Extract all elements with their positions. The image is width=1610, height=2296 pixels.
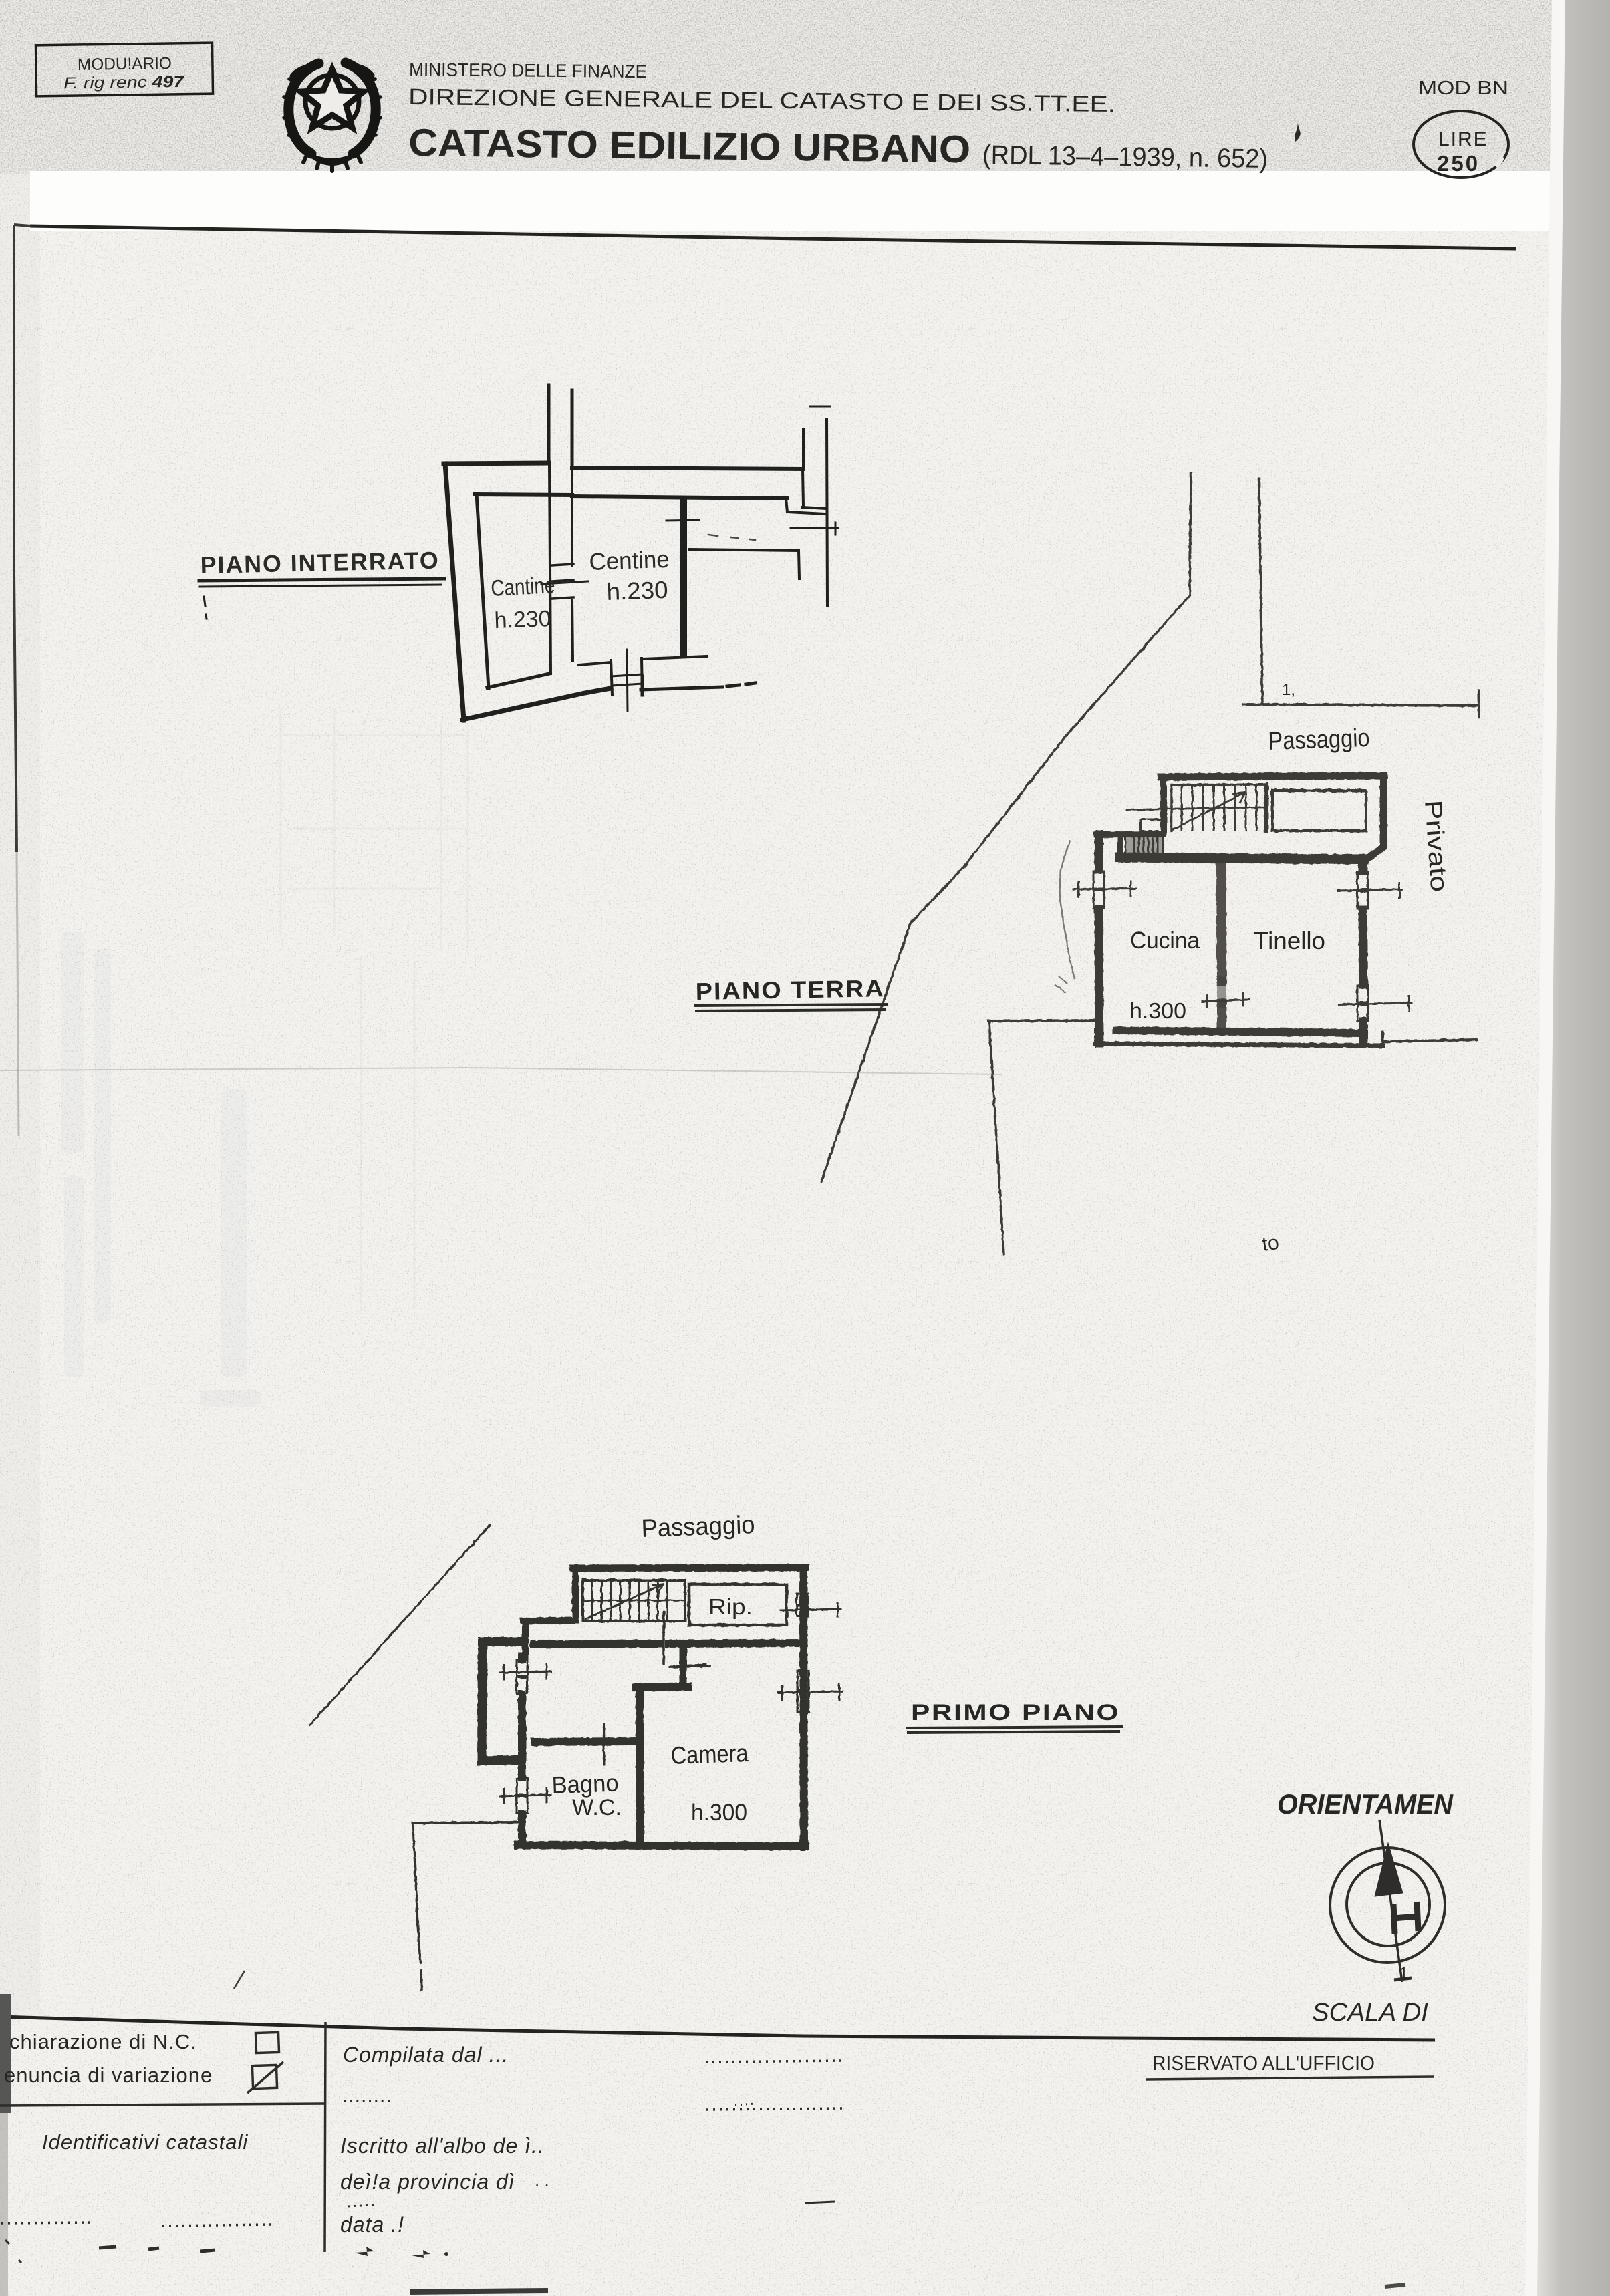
svg-text:MOD BN: MOD BN (1418, 78, 1508, 99)
svg-text:CATASTO EDILIZIO URBANO: CATASTO EDILIZIO URBANO (408, 121, 971, 171)
svg-text:Identificativi catastali: Identificativi catastali (42, 2130, 248, 2154)
svg-text:Passaggio: Passaggio (1268, 724, 1370, 756)
svg-text:250: 250 (1437, 151, 1480, 176)
svg-text:F. rig renc 497: F. rig renc 497 (63, 73, 185, 93)
svg-text:Tinello: Tinello (1254, 927, 1325, 954)
svg-text:to: to (1260, 1232, 1280, 1256)
svg-text:PIANO INTERRATO: PIANO INTERRATO (200, 547, 440, 579)
svg-text:Rip.: Rip. (708, 1594, 753, 1619)
svg-text:Iscritto all'albo de ì..: Iscritto all'albo de ì.. (340, 2134, 545, 2158)
svg-text:data .!: data .! (340, 2212, 404, 2237)
svg-text:Cantine: Cantine (490, 573, 555, 601)
svg-text:h.300: h.300 (691, 1800, 747, 1826)
svg-text:Centine: Centine (589, 545, 670, 575)
svg-text:deì!a provincia dì: deì!a provincia dì (340, 2170, 515, 2194)
svg-text:. .: . . (535, 2170, 549, 2190)
svg-text:W.C.: W.C. (572, 1795, 622, 1820)
svg-text:MINISTERO DELLE FINANZE: MINISTERO DELLE FINANZE (409, 59, 647, 82)
svg-text:SCALA DI: SCALA DI (1312, 1999, 1428, 2027)
svg-text:1,: 1, (1282, 681, 1295, 699)
svg-text:LIRE: LIRE (1438, 128, 1488, 150)
svg-text:Camera: Camera (670, 1739, 749, 1769)
svg-text:MODU!ARIO: MODU!ARIO (78, 54, 172, 74)
svg-text:h.300: h.300 (1129, 998, 1186, 1023)
svg-text:Cucina: Cucina (1130, 927, 1200, 954)
svg-text:enuncia di variazione: enuncia di variazione (4, 2063, 213, 2087)
svg-text:RISERVATO ALL'UFFICIO: RISERVATO ALL'UFFICIO (1152, 2051, 1375, 2075)
svg-text:h.230: h.230 (606, 576, 668, 605)
svg-text:Compilata dal ...: Compilata dal ... (343, 2043, 509, 2067)
svg-text:PIANO TERRA: PIANO TERRA (695, 974, 885, 1005)
svg-text:ORIENTAMEN: ORIENTAMEN (1277, 1788, 1454, 1820)
svg-text:h.230: h.230 (494, 606, 551, 633)
svg-text:........: ........ (342, 2085, 392, 2107)
svg-text:(RDL 13–4–1939, n. 652): (RDL 13–4–1939, n. 652) (982, 140, 1268, 174)
svg-text:1: 1 (1399, 1963, 1408, 1983)
svg-text:Passaggio: Passaggio (641, 1511, 755, 1543)
svg-text:PRIMO PIANO: PRIMO PIANO (911, 1700, 1120, 1725)
svg-text:chiarazione di N.C.: chiarazione di N.C. (9, 2030, 197, 2053)
